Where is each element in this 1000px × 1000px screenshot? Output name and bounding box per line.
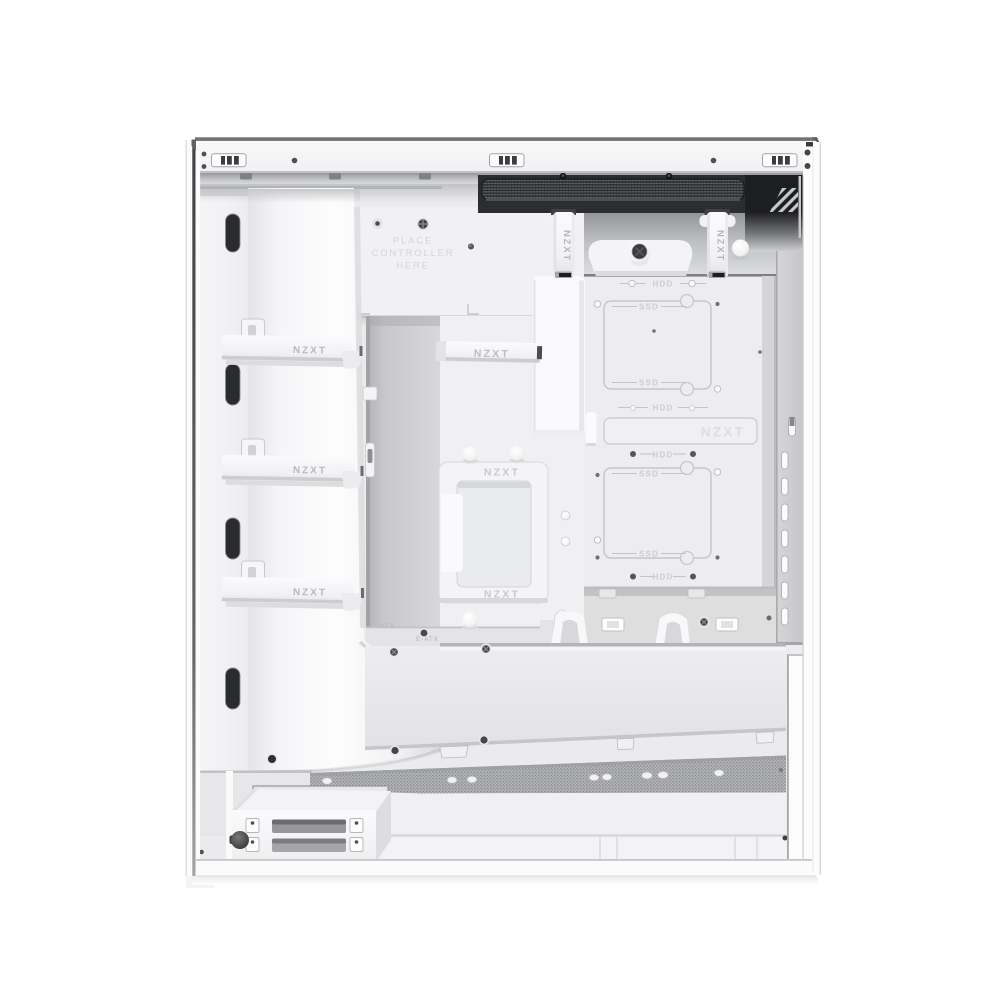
svg-text:NZXT: NZXT	[715, 230, 726, 262]
svg-text:PLACE: PLACE	[393, 236, 433, 247]
svg-text:NZXT: NZXT	[474, 348, 510, 361]
svg-text:NZXT: NZXT	[293, 345, 327, 357]
svg-text:NZXT: NZXT	[484, 589, 520, 601]
svg-text:HERE: HERE	[396, 261, 430, 272]
svg-text:NZXT: NZXT	[293, 587, 327, 599]
svg-text:ATX: ATX	[380, 623, 395, 630]
svg-text:CONTROLLER: CONTROLLER	[372, 248, 455, 259]
svg-text:SSD: SSD	[639, 379, 659, 388]
svg-text:E-ATX: E-ATX	[416, 636, 439, 643]
svg-text:SSD: SSD	[639, 303, 659, 312]
svg-text:NZXT: NZXT	[701, 425, 745, 440]
svg-text:NZXT: NZXT	[561, 230, 572, 262]
svg-text:NZXT: NZXT	[293, 465, 327, 477]
svg-text:HDD: HDD	[653, 280, 674, 289]
svg-text:HDD: HDD	[653, 451, 674, 460]
svg-text:SSD: SSD	[639, 470, 659, 479]
svg-text:NZXT: NZXT	[484, 467, 520, 479]
svg-text:HDD: HDD	[653, 573, 674, 582]
svg-text:HDD: HDD	[653, 404, 674, 413]
svg-text:SSD: SSD	[639, 550, 659, 559]
